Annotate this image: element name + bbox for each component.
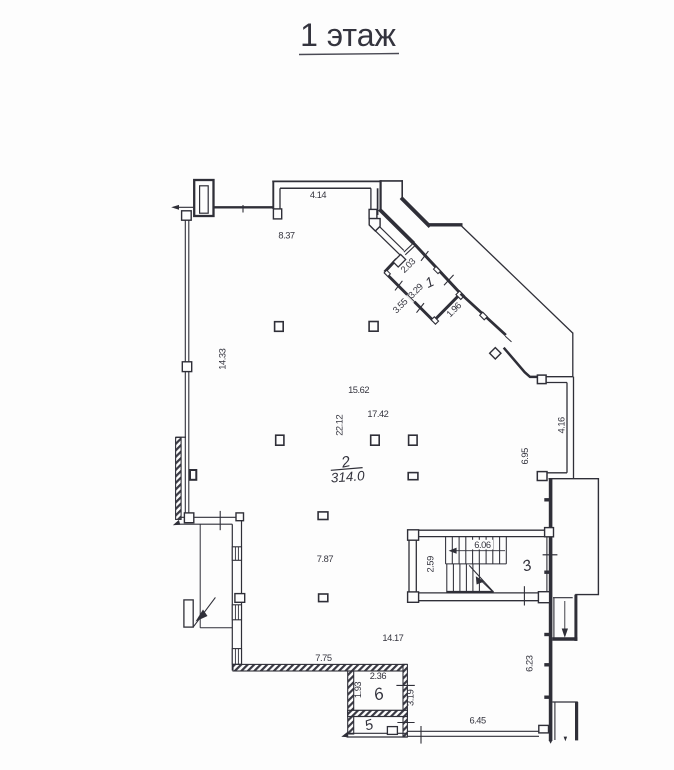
svg-text:6.95: 6.95 (520, 448, 530, 465)
svg-text:14.33: 14.33 (217, 348, 227, 369)
svg-text:6.45: 6.45 (469, 716, 486, 726)
svg-text:7.75: 7.75 (315, 653, 332, 663)
svg-text:2.59: 2.59 (425, 556, 435, 573)
svg-text:4.14: 4.14 (310, 190, 327, 200)
svg-text:5: 5 (363, 717, 377, 735)
svg-text:6.23: 6.23 (525, 655, 535, 672)
svg-text:22.12: 22.12 (334, 415, 344, 436)
svg-text:15.62: 15.62 (348, 385, 369, 395)
svg-text:6.06: 6.06 (474, 540, 491, 550)
svg-text:2.36: 2.36 (370, 671, 387, 681)
svg-text:14.17: 14.17 (382, 633, 403, 643)
svg-text:3.19: 3.19 (406, 689, 416, 706)
svg-text:1.96: 1.96 (444, 300, 463, 319)
svg-text:8.37: 8.37 (278, 231, 295, 241)
svg-text:7.87: 7.87 (317, 554, 334, 564)
svg-text:4.16: 4.16 (557, 417, 567, 434)
svg-text:6: 6 (371, 684, 386, 705)
svg-text:3: 3 (520, 557, 534, 576)
svg-text:3.55: 3.55 (391, 296, 410, 315)
svg-text:314.0: 314.0 (330, 468, 365, 485)
svg-text:1 этаж: 1 этаж (300, 17, 396, 53)
svg-text:1: 1 (422, 273, 436, 291)
svg-text:17.42: 17.42 (367, 409, 388, 419)
svg-text:1.93: 1.93 (353, 682, 363, 699)
